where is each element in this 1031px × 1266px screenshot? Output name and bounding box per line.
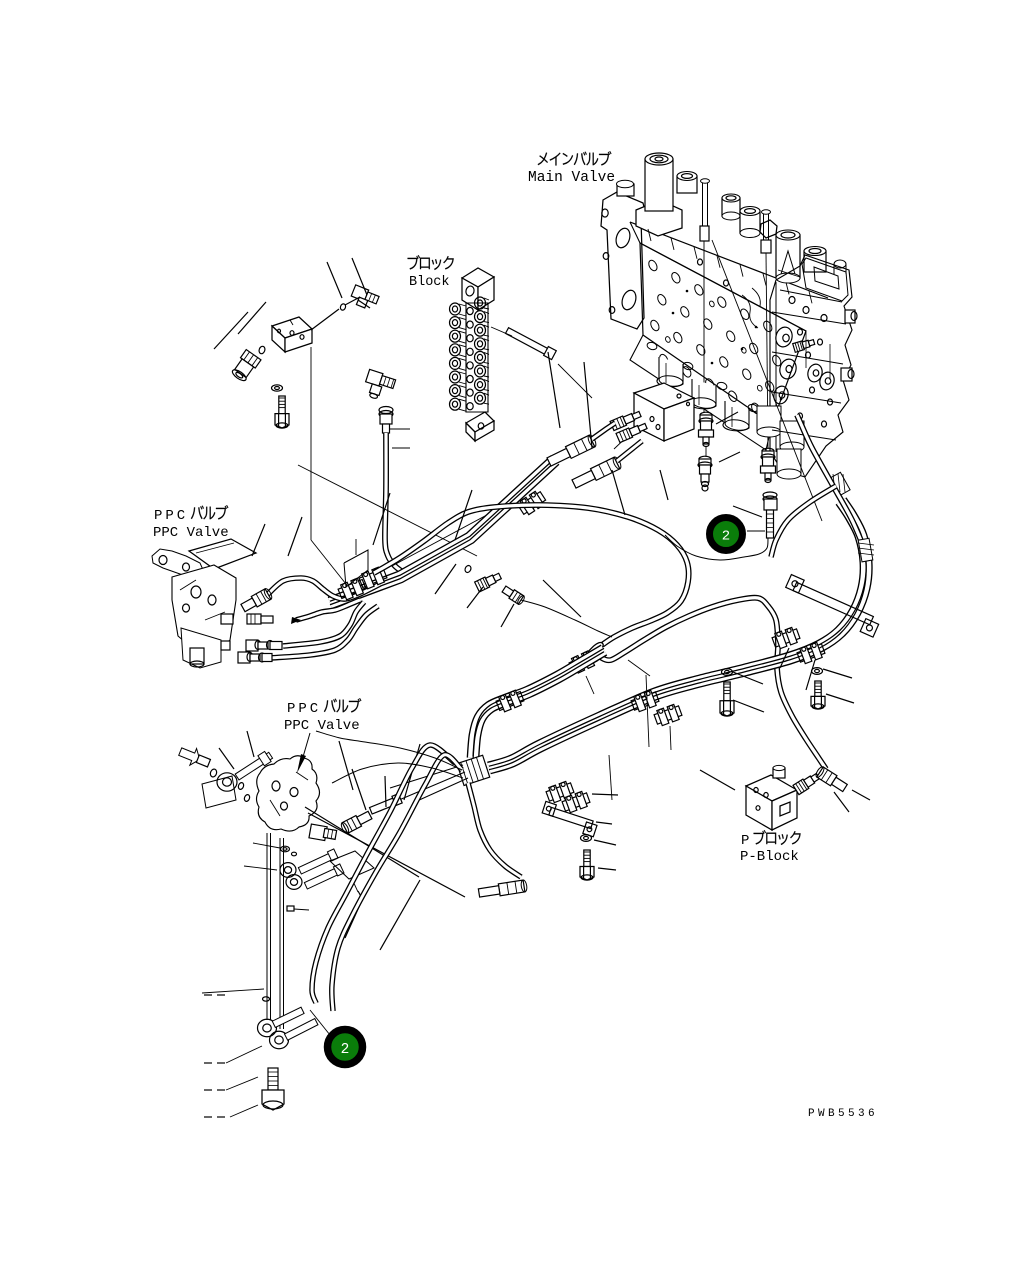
svg-text:PPC: PPC xyxy=(154,508,188,524)
svg-text:Block: Block xyxy=(409,275,450,290)
svg-text:P: P xyxy=(741,833,749,849)
svg-text:2: 2 xyxy=(722,529,730,545)
svg-text:P-Block: P-Block xyxy=(740,849,799,865)
svg-text:PPC Valve: PPC Valve xyxy=(153,525,229,541)
svg-text:PWB5536: PWB5536 xyxy=(808,1108,878,1120)
svg-text:PPC Valve: PPC Valve xyxy=(284,718,360,734)
svg-text:PPC: PPC xyxy=(287,701,321,717)
svg-text:2: 2 xyxy=(341,1042,350,1058)
svg-text:Main Valve: Main Valve xyxy=(528,170,615,186)
